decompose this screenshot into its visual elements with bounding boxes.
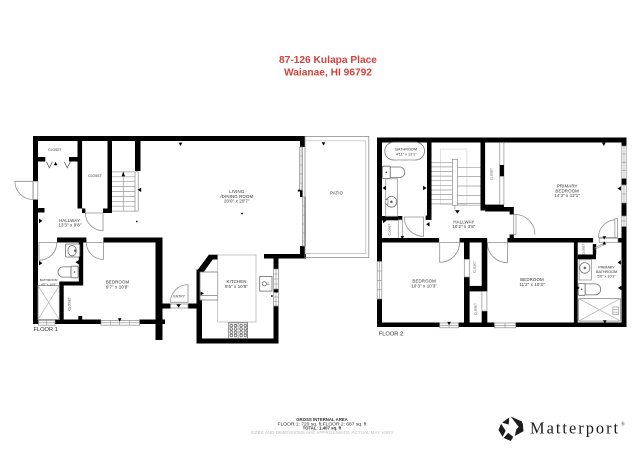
- svg-text:CLOSET: CLOSET: [67, 297, 71, 311]
- svg-text:CLOSET: CLOSET: [582, 244, 586, 255]
- svg-text:Waianae, HI 96792: Waianae, HI 96792: [284, 67, 372, 78]
- svg-text:5'0" x 10'3": 5'0" x 10'3": [597, 275, 616, 279]
- svg-text:BATHROOM: BATHROOM: [40, 278, 58, 282]
- svg-text:CLOSET: CLOSET: [48, 148, 62, 152]
- svg-text:9'6" x 10'5": 9'6" x 10'5": [225, 284, 248, 289]
- svg-text:CLOSET: CLOSET: [473, 261, 477, 273]
- svg-text:CLOSET: CLOSET: [490, 168, 494, 180]
- svg-text:SIZES AND DIMENSIONS ARE APPRO: SIZES AND DIMENSIONS ARE APPROXIMATE, AC…: [250, 430, 393, 435]
- svg-text:BATHROOM: BATHROOM: [596, 270, 617, 274]
- svg-text:9'7" x 10'9": 9'7" x 10'9": [106, 284, 129, 289]
- svg-text:10'2" x 3'8": 10'2" x 3'8": [452, 224, 475, 229]
- svg-text:4'0" x 10'9": 4'0" x 10'9": [41, 283, 56, 287]
- svg-text:CLOSET: CLOSET: [474, 303, 478, 315]
- svg-text:87-126 Kulapa Place: 87-126 Kulapa Place: [279, 55, 377, 66]
- svg-text:13'3" x 9'8": 13'3" x 9'8": [58, 223, 81, 228]
- svg-text:Matterport: Matterport: [530, 419, 620, 438]
- svg-text:FLOOR 2: FLOOR 2: [379, 332, 403, 338]
- svg-text:FLOOR 1: FLOOR 1: [34, 327, 58, 333]
- svg-text:CLOSET: CLOSET: [388, 223, 392, 235]
- svg-text:4'11" x 12'1": 4'11" x 12'1": [396, 153, 417, 157]
- svg-text:14'3" x 12'1": 14'3" x 12'1": [554, 193, 580, 198]
- svg-text:11'2" x 10'3": 11'2" x 10'3": [519, 282, 545, 287]
- svg-text:PATIO: PATIO: [330, 191, 344, 196]
- svg-text:BATHROOM: BATHROOM: [395, 147, 417, 151]
- svg-text:20'0" x 20'7": 20'0" x 20'7": [224, 199, 250, 204]
- svg-text:®: ®: [621, 422, 625, 428]
- svg-text:10'3" x 10'3": 10'3" x 10'3": [411, 284, 437, 289]
- svg-text:PRIMARY: PRIMARY: [598, 265, 615, 269]
- svg-text:CLOSET: CLOSET: [88, 174, 102, 178]
- svg-text:ENTRY: ENTRY: [173, 295, 185, 299]
- svg-text:GROSS INTERNAL AREA: GROSS INTERNAL AREA: [296, 417, 348, 422]
